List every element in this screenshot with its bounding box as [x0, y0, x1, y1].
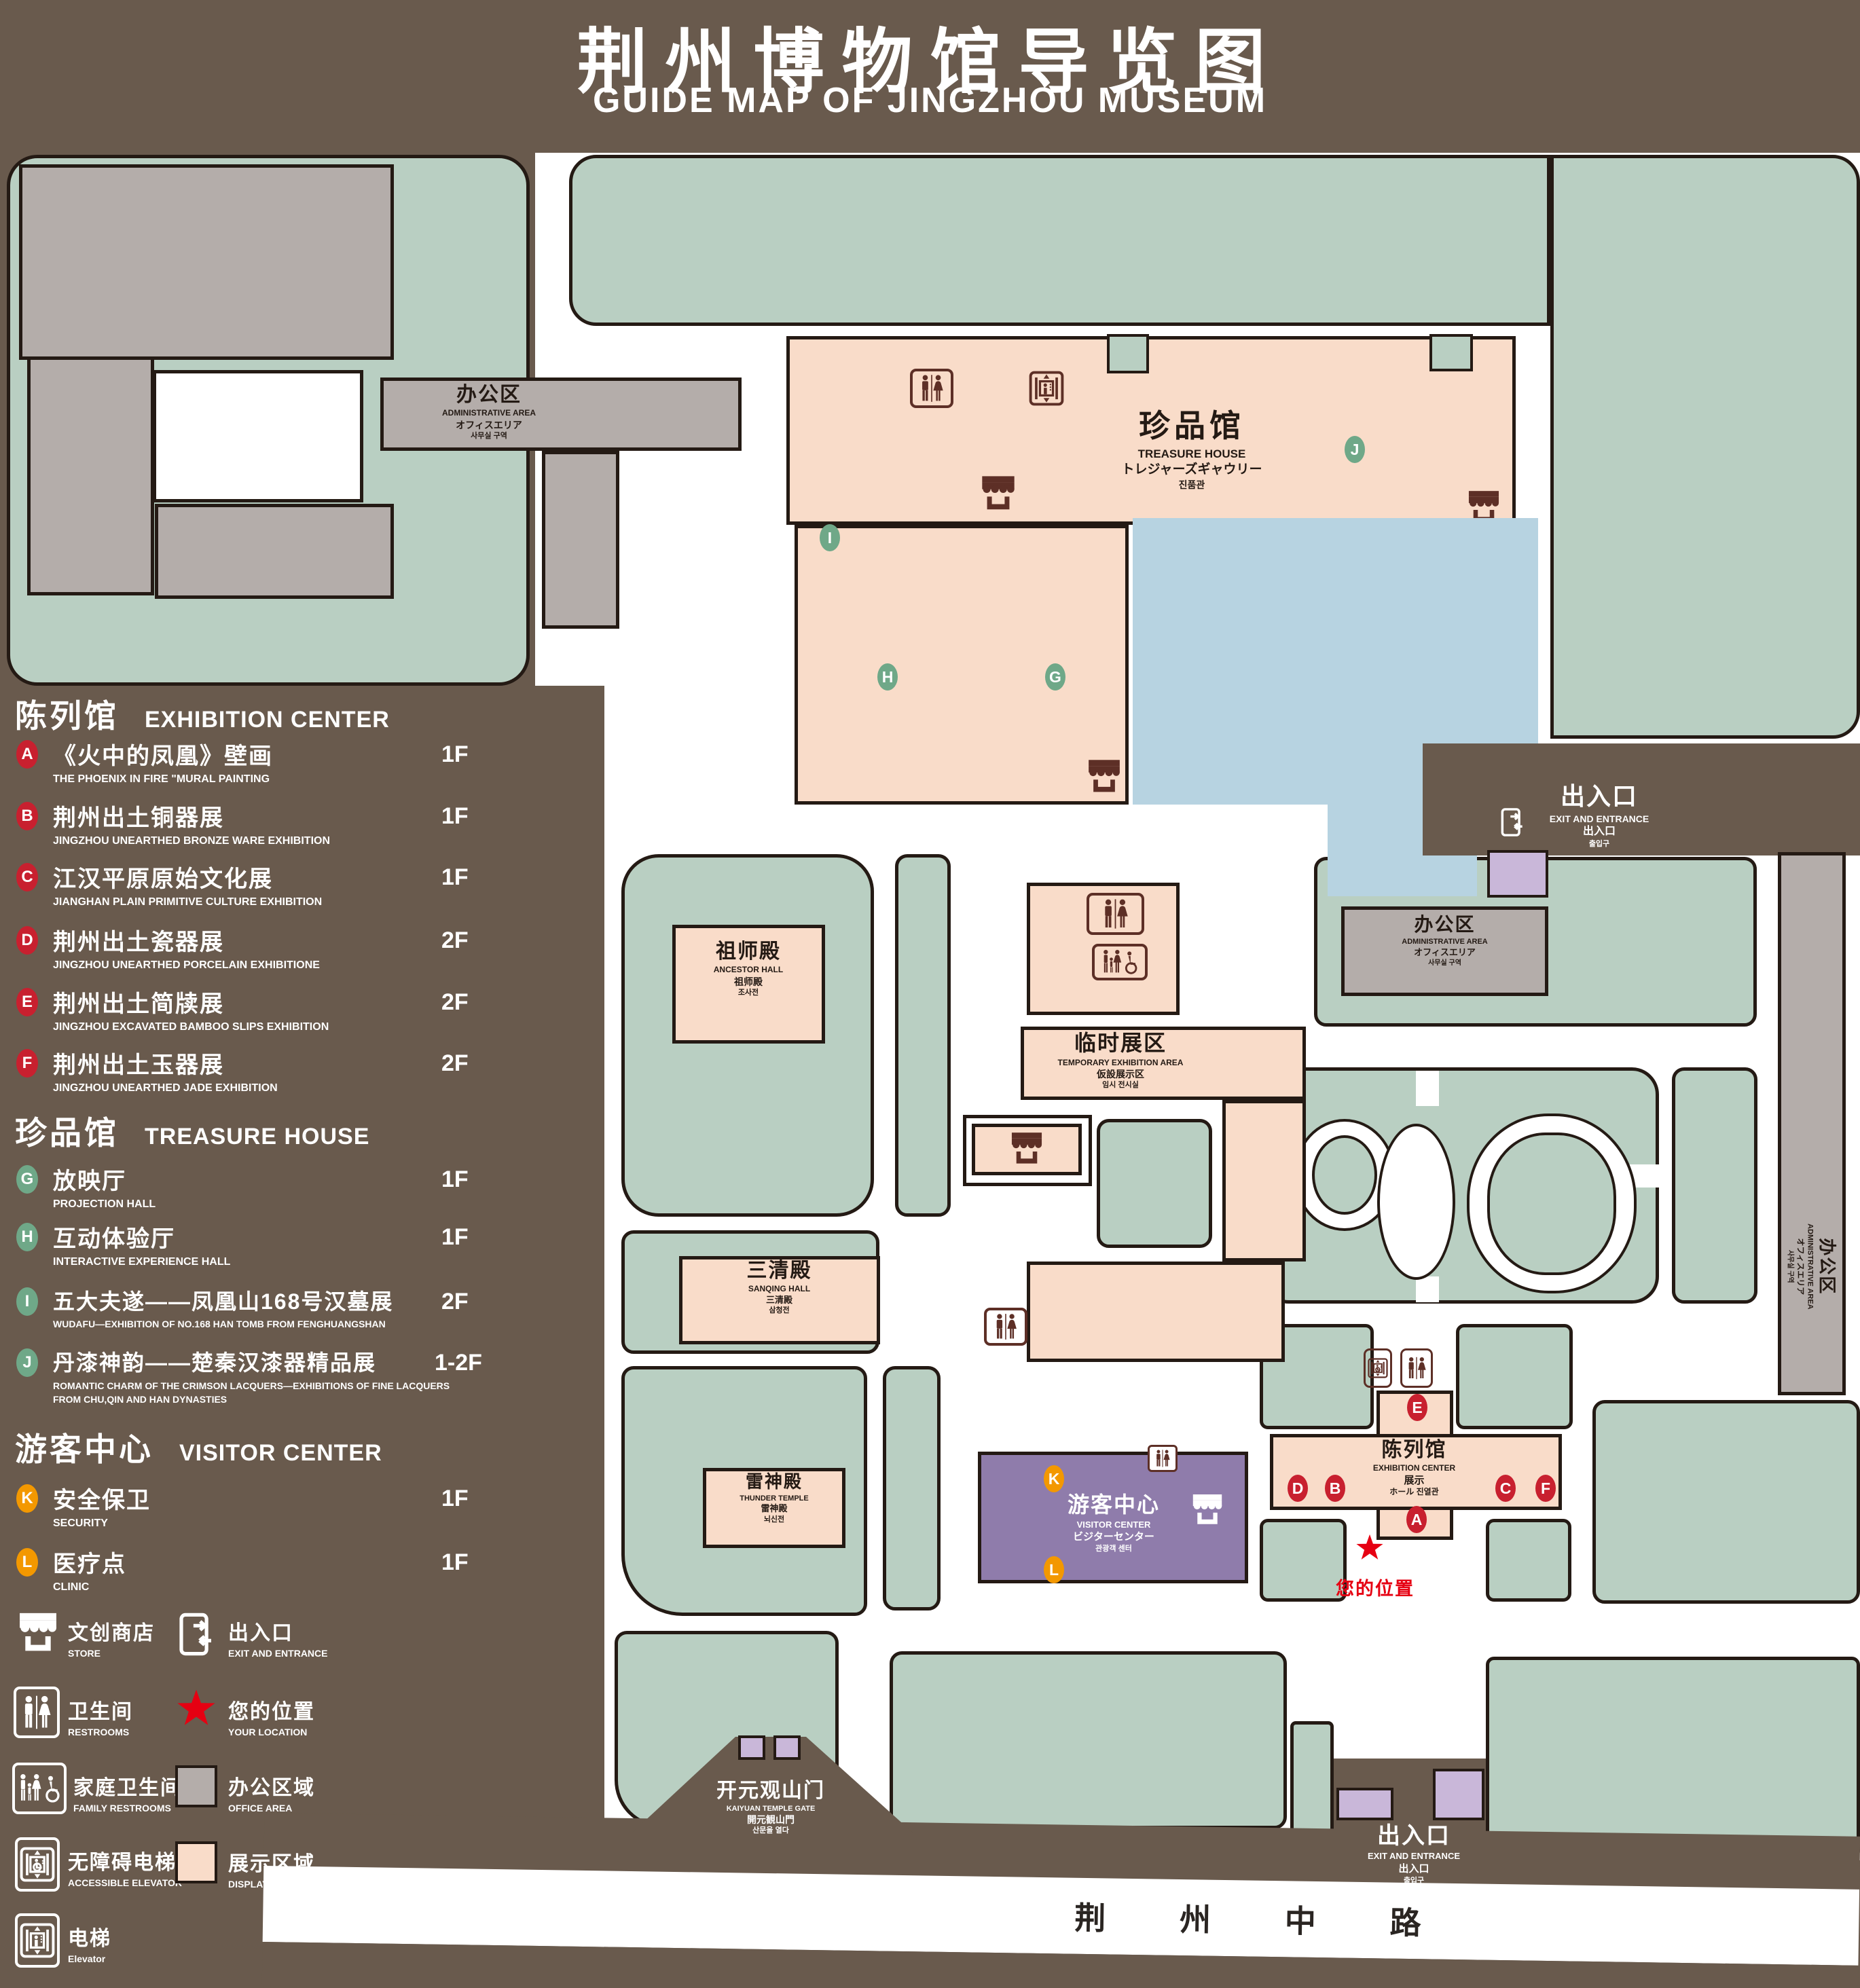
exhibition-label-en: EXHIBITION CENTER: [1373, 1463, 1455, 1474]
temporary-area-lower-wing: [1027, 1262, 1285, 1362]
temporary-area-right-wing: [1222, 1100, 1306, 1262]
exit-bottom-ko: 출입구: [1404, 1876, 1424, 1885]
store-icon: [14, 1610, 62, 1655]
item-en: CLINIC: [53, 1581, 433, 1594]
legend-marker-L: L: [16, 1548, 38, 1577]
legend-floor-C: 1F: [441, 864, 469, 891]
legend-floor-B: 1F: [441, 803, 469, 830]
legend-symbol-family-restrooms: 家庭卫生间 FAMILY RESTROOMS: [73, 1771, 182, 1814]
exhibition-center-label: 陈列馆 EXHIBITION CENTER 展示 ホール 진열관: [1331, 1437, 1497, 1498]
sanqing-label-ko: 삼청전: [769, 1306, 789, 1315]
legend-marker-G: G: [16, 1165, 38, 1194]
item-en: JINGZHOU UNEARTHED PORCELAIN EXHIBITIONE: [53, 959, 433, 972]
restrooms-icon: [1087, 893, 1144, 935]
treasure-label-en: TREASURE HOUSE: [1138, 447, 1246, 462]
restrooms-icon: [1400, 1348, 1433, 1388]
gate-label-ko: 산문을 열다: [752, 1826, 789, 1835]
sym-en: EXIT AND ENTRANCE: [228, 1648, 328, 1659]
marker-C: C: [1495, 1475, 1516, 1502]
gatehouse-bottom-right: [1433, 1769, 1484, 1820]
road-name: 荆 州 中 路: [1074, 1894, 1454, 1944]
item-en: THE PHOENIX IN FIRE "MURAL PAINTING: [53, 773, 433, 786]
item-en: PROJECTION HALL: [53, 1198, 433, 1211]
admin-strip-ja: オフィスエリア: [1795, 1238, 1806, 1295]
sanqing-hall-label: 三清殿 SANQING HALL 三清殿 삼청전: [686, 1257, 873, 1316]
elevator-icon: [1027, 369, 1066, 408]
item-zh: 丹漆神韵——楚秦汉漆器精品展: [53, 1346, 460, 1377]
lawn-exhibition-tr: [1456, 1324, 1573, 1429]
visitor-label-ko: 관광객 센터: [1095, 1544, 1132, 1553]
restrooms-icon: [984, 1308, 1027, 1346]
thunder-label-ko: 뇌신전: [764, 1515, 784, 1524]
section-title-en: VISITOR CENTER: [179, 1440, 382, 1467]
sym-zh: 办公区域: [228, 1771, 315, 1801]
sym-zh: 家庭卫生间: [73, 1771, 182, 1801]
display-area-swatch: [175, 1841, 217, 1883]
garden-path-north: [1416, 1071, 1439, 1106]
restrooms-icon: [1148, 1445, 1178, 1472]
admin-top-left-block3: [155, 504, 394, 599]
legend-marker-K: K: [16, 1484, 38, 1513]
exit-top-label: 出入口 EXIT AND ENTRANCE 出入口 출입구: [1531, 781, 1667, 849]
exit-bottom-label: 出入口 EXIT AND ENTRANCE 出入口 출입구: [1346, 1821, 1482, 1885]
legend-item-I: 五大夫遂——凤凰山168号汉墓展 WUDAFU—EXHIBITION OF NO…: [53, 1285, 460, 1329]
lawn-top-right: [1550, 155, 1860, 739]
sym-en: OFFICE AREA: [228, 1803, 315, 1814]
legend-item-H: 互动体验厅 INTERACTIVE EXPERIENCE HALL: [53, 1220, 433, 1268]
store-icon: [1190, 1490, 1225, 1530]
gatehouse-top: [1487, 850, 1548, 898]
exit-icon: [1497, 800, 1527, 845]
sym-en: Elevator: [68, 1953, 111, 1964]
treasure-label-ko: 진품관: [1179, 479, 1205, 491]
admin-label-en: ADMINISTRATIVE AREA: [442, 408, 536, 419]
elevator-icon: [15, 1913, 60, 1968]
legend-item-G: 放映厅 PROJECTION HALL: [53, 1162, 433, 1211]
section-title-en: TREASURE HOUSE: [145, 1124, 369, 1150]
sym-zh: 文创商店: [68, 1616, 155, 1646]
legend-section-visitor: 游客中心 VISITOR CENTER: [15, 1423, 382, 1470]
exit-top-ko: 출입구: [1589, 839, 1609, 849]
exhibition-label-ja: 展示: [1404, 1474, 1424, 1488]
item-en: JIANGHAN PLAIN PRIMITIVE CULTURE EXHIBIT…: [53, 896, 433, 908]
admin-top-left-label: 办公区 ADMINISTRATIVE AREA オフィスエリア 사무실 구역: [384, 382, 594, 441]
item-zh: 荆州出土瓷器展: [53, 923, 433, 957]
legend-symbol-display-area: 展示区域 DISPLAY AREA: [228, 1847, 315, 1890]
marker-I: I: [820, 524, 840, 551]
accessible-elevator-icon: [1364, 1348, 1392, 1388]
garden-island-east: [1487, 1133, 1616, 1275]
item-en: JINGZHOU UNEARTHED BRONZE WARE EXHIBITIO…: [53, 835, 433, 847]
sym-zh: 无障碍电梯: [68, 1845, 182, 1875]
section-title-zh: 游客中心: [15, 1423, 153, 1470]
visitor-label-ja: ビジターセンター: [1073, 1530, 1154, 1544]
legend-item-D: 荆州出土瓷器展 JINGZHOU UNEARTHED PORCELAIN EXH…: [53, 923, 433, 972]
legend-floor-I: 2F: [441, 1289, 469, 1315]
legend-floor-E: 2F: [441, 989, 469, 1016]
legend-marker-A: A: [16, 740, 38, 769]
section-title-zh: 珍品馆: [15, 1107, 119, 1154]
legend-floor-H: 1F: [441, 1224, 469, 1251]
family-restrooms-icon: [1092, 944, 1148, 980]
sanqing-label-zh: 三清殿: [747, 1257, 812, 1284]
store-icon: [1085, 755, 1123, 798]
admin-right-zh: 办公区: [1414, 913, 1475, 937]
restrooms-icon: [14, 1687, 60, 1738]
legend-floor-D: 2F: [441, 927, 469, 954]
ancestor-label-ko: 조사전: [738, 988, 759, 997]
section-title-en: EXHIBITION CENTER: [145, 707, 390, 733]
legend-floor-L: 1F: [441, 1549, 469, 1576]
gate-label: 开元观山门 KAIYUAN TEMPLE GATE 開元観山門 산문을 열다: [669, 1778, 873, 1836]
treasure-house-lower: [795, 525, 1129, 805]
sym-zh: 卫生间: [68, 1695, 133, 1725]
admin-label-ja: オフィスエリア: [456, 419, 522, 431]
marker-L: L: [1044, 1556, 1064, 1583]
admin-strip-label: 办公区 ADMINISTRATIVE AREA オフィスエリア 사무실 구역: [1786, 1168, 1838, 1365]
garden-path-south: [1416, 1276, 1439, 1302]
exhibition-label-ko: ホール 진열관: [1389, 1487, 1438, 1498]
road-group: 荆 州 中 路: [262, 1789, 1860, 1988]
lawn-temp-courtyard: [1097, 1119, 1212, 1248]
marker-J: J: [1345, 436, 1365, 463]
marker-A: A: [1406, 1506, 1427, 1533]
admin-strip-zh: 办公区: [1815, 1238, 1838, 1295]
legend-section-exhibition: 陈列馆 EXHIBITION CENTER: [15, 690, 390, 737]
guide-map-poster: 荆州博物馆导览图 GUIDE MAP OF JINGZHOU MUSEUM 办公…: [0, 0, 1860, 1988]
item-zh: 荆州出土简牍展: [53, 985, 433, 1018]
item-zh: 江汉平原原始文化展: [53, 860, 433, 894]
temp-label-ja: 仮設展示区: [1097, 1068, 1144, 1080]
item-en: WUDAFU—EXHIBITION OF NO.168 HAN TOMB FRO…: [53, 1319, 460, 1329]
garden-pond-blob: [1377, 1124, 1455, 1280]
legend-floor-G: 1F: [441, 1166, 469, 1193]
item-zh: 五大夫遂——凤凰山168号汉墓展: [53, 1285, 460, 1316]
legend-marker-E: E: [16, 988, 38, 1016]
treasure-label-zh: 珍品馆: [1139, 406, 1245, 447]
family-restrooms-icon: [12, 1763, 67, 1814]
admin-strip-en: ADMINISTRATIVE AREA: [1805, 1223, 1815, 1310]
legend-item-L: 医疗点 CLINIC: [53, 1545, 433, 1594]
legend-section-treasure: 珍品馆 TREASURE HOUSE: [15, 1107, 369, 1154]
item-zh: 医疗点: [53, 1545, 433, 1579]
treasure-house-label: 珍品馆 TREASURE HOUSE トレジャーズギャウリー 진품관: [1076, 406, 1307, 491]
thunder-temple-label: 雷神殿 THUNDER TEMPLE 雷神殿 뇌신전: [699, 1471, 849, 1524]
temp-label-ko: 임시 전시실: [1102, 1080, 1139, 1090]
admin-top-left-block1: [19, 164, 394, 360]
legend-symbol-restrooms: 卫生间 RESTROOMS: [68, 1695, 133, 1737]
treasure-roof-notch-1: [1107, 334, 1149, 373]
ancestor-label-en: ANCESTOR HALL: [714, 965, 783, 976]
store-icon: [1008, 1128, 1045, 1169]
item-en: JINGZHOU UNEARTHED JADE EXHIBITION: [53, 1082, 433, 1094]
your-location-icon: [175, 1688, 217, 1730]
legend-floor-F: 2F: [441, 1050, 469, 1077]
legend-symbol-store: 文创商店 STORE: [68, 1616, 155, 1659]
legend-marker-I: I: [16, 1287, 38, 1316]
ancestor-hall-label: 祖师殿 ANCESTOR HALL 祖师殿 조사전: [667, 938, 830, 997]
sym-en: RESTROOMS: [68, 1727, 133, 1737]
your-location-icon: [1355, 1533, 1385, 1563]
item-en: SECURITY: [53, 1517, 433, 1530]
legend-marker-F: F: [16, 1049, 38, 1078]
exit-top-en: EXIT AND ENTRANCE: [1550, 813, 1649, 825]
lawn-right-lower: [1592, 1400, 1860, 1604]
visitor-label-zh: 游客中心: [1068, 1491, 1160, 1520]
admin-right-label: 办公区 ADMINISTRATIVE AREA オフィスエリア 사무실 구역: [1348, 913, 1542, 968]
sym-en: ACCESSIBLE ELEVATOR: [68, 1877, 182, 1888]
marker-H: H: [877, 663, 898, 691]
sym-zh: 展示区域: [228, 1847, 315, 1877]
legend-item-B: 荆州出土铜器展 JINGZHOU UNEARTHED BRONZE WARE E…: [53, 799, 433, 847]
legend-symbol-accessible-elevator: 无障碍电梯 ACCESSIBLE ELEVATOR: [68, 1845, 182, 1888]
item-zh: 荆州出土铜器展: [53, 799, 433, 832]
item-en: JINGZHOU EXCAVATED BAMBOO SLIPS EXHIBITI…: [53, 1021, 433, 1033]
admin-label-zh: 办公区: [456, 382, 522, 408]
legend-floor-A: 1F: [441, 741, 469, 768]
legend-item-J: 丹漆神韵——楚秦汉漆器精品展 ROMANTIC CHARM OF THE CRI…: [53, 1346, 460, 1406]
store-icon: [978, 474, 1019, 513]
gate-label-zh: 开元观山门: [716, 1778, 825, 1804]
treasure-roof-notch-2: [1429, 334, 1473, 371]
temp-label-en: TEMPORARY EXHIBITION AREA: [1058, 1058, 1184, 1069]
legend-symbol-your-location: 您的位置 YOUR LOCATION: [228, 1695, 315, 1737]
legend-marker-D: D: [16, 926, 38, 955]
legend-floor-K: 1F: [441, 1486, 469, 1512]
legend-symbol-office-area: 办公区域 OFFICE AREA: [228, 1771, 315, 1814]
lawn-strip-center-lower: [883, 1366, 941, 1610]
gate-pillar-right: [773, 1735, 801, 1760]
legend-item-C: 江汉平原原始文化展 JIANGHAN PLAIN PRIMITIVE CULTU…: [53, 860, 433, 908]
admin-right-en: ADMINISTRATIVE AREA: [1402, 937, 1488, 946]
garden-island-west: [1312, 1135, 1377, 1215]
admin-top-left-courtyard: [153, 370, 363, 502]
sanqing-label-en: SANQING HALL: [748, 1284, 810, 1295]
lawn-strip-center: [895, 854, 951, 1217]
accessible-elevator-icon: [15, 1837, 60, 1892]
restrooms-icon: [910, 369, 953, 408]
legend-item-K: 安全保卫 SECURITY: [53, 1481, 433, 1530]
marker-B: B: [1325, 1475, 1345, 1502]
sym-en: FAMILY RESTROOMS: [73, 1803, 182, 1814]
your-location-text: 您的位置: [1324, 1574, 1426, 1600]
gate-label-ja: 開元観山門: [747, 1814, 795, 1826]
gate-label-en: KAIYUAN TEMPLE GATE: [727, 1804, 816, 1814]
office-area-swatch: [175, 1765, 217, 1807]
admin-top-left-block2: [27, 356, 154, 595]
sym-en: STORE: [68, 1648, 155, 1659]
sym-zh: 电梯: [68, 1921, 111, 1951]
section-title-zh: 陈列馆: [15, 690, 119, 737]
exit-bottom-ja: 出入口: [1398, 1862, 1429, 1876]
item-en: INTERACTIVE EXPERIENCE HALL: [53, 1256, 433, 1268]
gate-pillar-left: [738, 1735, 765, 1760]
legend-symbol-exit: 出入口 EXIT AND ENTRANCE: [228, 1616, 328, 1659]
exhibition-label-zh: 陈列馆: [1382, 1437, 1447, 1463]
ancestor-label-ja: 祖师殿: [734, 976, 763, 988]
admin-strip-label-wrap: 办公区 ADMINISTRATIVE AREA オフィスエリア 사무실 구역: [1711, 1168, 1860, 1365]
sanqing-label-ja: 三清殿: [766, 1295, 792, 1306]
legend-marker-B: B: [16, 802, 38, 830]
legend-item-F: 荆州出土玉器展 JINGZHOU UNEARTHED JADE EXHIBITI…: [53, 1046, 433, 1094]
sym-en: DISPLAY AREA: [228, 1879, 315, 1890]
admin-right-ko: 사무실 구역: [1428, 959, 1461, 968]
legend-item-E: 荆州出土简牍展 JINGZHOU EXCAVATED BAMBOO SLIPS …: [53, 985, 433, 1033]
lawn-exhibition-br: [1486, 1519, 1571, 1602]
legend-floor-J: 1-2F: [435, 1350, 482, 1376]
thunder-label-en: THUNDER TEMPLE: [740, 1494, 808, 1503]
admin-top-left-arm: [542, 451, 619, 629]
thunder-label-zh: 雷神殿: [746, 1471, 803, 1494]
admin-right-ja: オフィスエリア: [1414, 947, 1476, 959]
temporary-area-label: 临时展区 TEMPORARY EXHIBITION AREA 仮設展示区 임시 …: [1019, 1029, 1222, 1090]
item-en: ROMANTIC CHARM OF THE CRIMSON LACQUERS—E…: [53, 1380, 460, 1406]
garden-path-east: [1630, 1164, 1671, 1188]
lawn-top-band: [569, 155, 1550, 326]
temp-label-zh: 临时展区: [1074, 1029, 1167, 1058]
marker-F: F: [1535, 1475, 1556, 1502]
marker-G: G: [1045, 663, 1065, 691]
sym-zh: 您的位置: [228, 1695, 315, 1725]
marker-D: D: [1288, 1475, 1308, 1502]
page-subtitle: GUIDE MAP OF JINGZHOU MUSEUM: [0, 80, 1860, 121]
legend-marker-H: H: [16, 1223, 38, 1251]
legend-marker-J: J: [16, 1348, 38, 1377]
visitor-label-en: VISITOR CENTER: [1077, 1520, 1151, 1531]
exit-icon: [174, 1610, 219, 1658]
gatehouse-bottom-left: [1336, 1788, 1393, 1820]
exit-top-ja: 出入口: [1583, 825, 1616, 839]
admin-strip-ko: 사무실 구역: [1786, 1250, 1795, 1283]
exit-top-zh: 出入口: [1561, 781, 1638, 813]
visitor-center-label: 游客中心 VISITOR CENTER ビジターセンター 관광객 센터: [1012, 1491, 1216, 1553]
treasure-label-ja: トレジャーズギャウリー: [1121, 462, 1262, 479]
legend-symbol-elevator: 电梯 Elevator: [68, 1921, 111, 1964]
thunder-label-ja: 雷神殿: [761, 1503, 787, 1515]
exit-bottom-en: EXIT AND ENTRANCE: [1368, 1851, 1460, 1862]
item-zh: 安全保卫: [53, 1481, 433, 1515]
legend-marker-C: C: [16, 863, 38, 891]
item-zh: 放映厅: [53, 1162, 433, 1196]
marker-E: E: [1407, 1394, 1427, 1421]
marker-K: K: [1044, 1465, 1064, 1492]
ancestor-label-zh: 祖师殿: [716, 938, 781, 965]
item-zh: 互动体验厅: [53, 1220, 433, 1253]
sym-zh: 出入口: [228, 1616, 328, 1646]
sym-en: YOUR LOCATION: [228, 1727, 315, 1737]
exit-bottom-zh: 出入口: [1377, 1821, 1451, 1851]
item-zh: 《火中的凤凰》壁画: [53, 737, 433, 771]
item-zh: 荆州出土玉器展: [53, 1046, 433, 1080]
admin-label-ko: 사무실 구역: [471, 431, 507, 441]
legend-item-A: 《火中的凤凰》壁画 THE PHOENIX IN FIRE "MURAL PAI…: [53, 737, 433, 786]
